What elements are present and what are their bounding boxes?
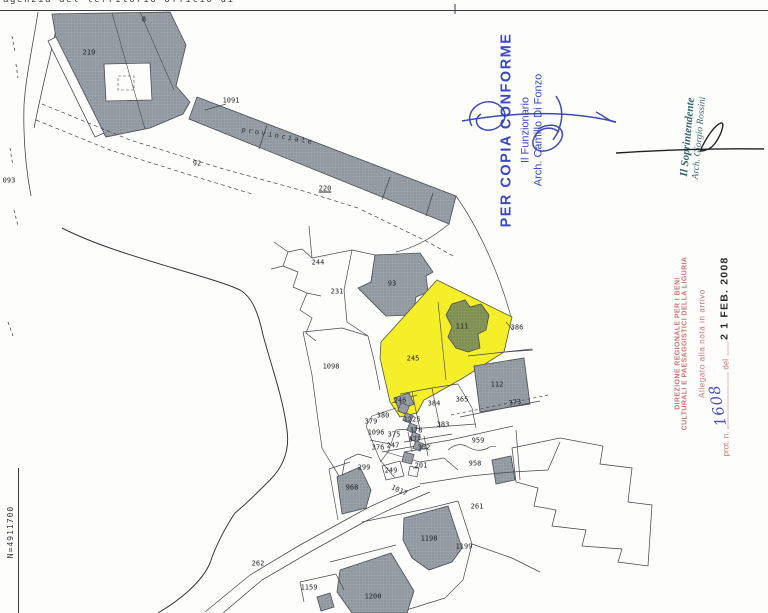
parcel-label-93: 93 <box>388 281 396 288</box>
parcel-label-380: 380 <box>377 413 390 420</box>
parcel-label-383: 383 <box>437 422 450 429</box>
signature-soprintendente <box>616 123 764 153</box>
parcel-label-958: 958 <box>469 461 482 468</box>
parcel-label-1091: 1091 <box>223 98 240 105</box>
parcel-label-093: 093 <box>3 178 16 185</box>
parcel-label-375: 375 <box>388 432 401 439</box>
parcel-label-92: 92 <box>193 161 201 168</box>
parcel-label-378: 378 <box>410 428 423 435</box>
parcel-label-1225: 1225 <box>404 417 421 424</box>
parcel-label-249: 249 <box>385 468 398 475</box>
signature-funzionario <box>462 96 616 151</box>
parcel-label-244: 244 <box>312 260 325 267</box>
parcel-label-1096: 1096 <box>368 430 385 437</box>
parcel-label-968: 968 <box>346 485 359 492</box>
parcel-label-8: 8 <box>142 17 146 24</box>
building-220-strip <box>189 97 456 224</box>
parcel-label-377: 377 <box>409 437 422 444</box>
parcel-label-376: 376 <box>372 445 385 452</box>
parcel-label-299: 299 <box>358 465 371 472</box>
parcel-label-201: 201 <box>415 463 428 470</box>
parcel-label-1199: 1199 <box>456 544 473 551</box>
map-linework <box>0 0 768 613</box>
terrain-lines <box>8 12 60 336</box>
coastline <box>62 228 288 613</box>
parcel-label-261: 261 <box>471 504 484 511</box>
parcel-label-382: 382 <box>418 445 431 452</box>
parcel-1098-lines <box>303 328 380 478</box>
cadastral-map-page: agenzia del territorio Ufficio di <box>0 0 768 613</box>
parcel-label-231: 231 <box>331 289 344 296</box>
parcel-label-219: 219 <box>83 50 96 57</box>
parcel-label-220: 220 <box>319 186 332 193</box>
cluster-231-244 <box>271 242 375 341</box>
parcel-label-1159: 1159 <box>301 585 318 592</box>
parcel-label-247: 247 <box>387 443 400 450</box>
parcel-label-111: 111 <box>456 324 469 331</box>
parcel-label-245: 245 <box>407 356 420 363</box>
parcel-label-386: 386 <box>511 325 524 332</box>
notched-lot-boundary <box>512 438 652 566</box>
parcel-label-1200: 1200 <box>365 594 382 601</box>
parcel-label-262: 262 <box>252 561 265 568</box>
coordinate-label: N=4911700 <box>6 496 22 568</box>
building-1200-group <box>330 545 414 613</box>
parcel-label-1098: 1098 <box>323 364 340 371</box>
parcel-label-365: 365 <box>456 397 469 404</box>
parcel-label-379: 379 <box>365 419 378 426</box>
parcel-label-384: 384 <box>428 401 441 408</box>
parcel-label-1198: 1198 <box>421 536 438 543</box>
parcel-label-246: 246 <box>394 398 407 405</box>
parcel-label-112: 112 <box>491 382 504 389</box>
building-219 <box>48 12 190 137</box>
parcel-label-959: 959 <box>472 438 485 445</box>
